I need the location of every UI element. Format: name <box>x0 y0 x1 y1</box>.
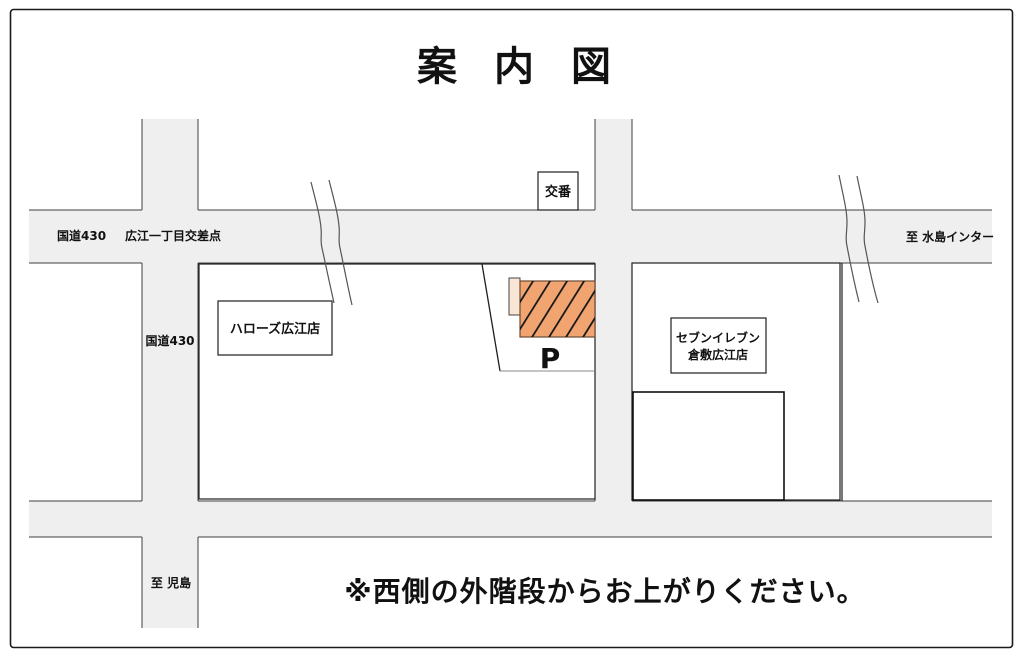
stairs-note: ※西側の外階段からお上がりください。 <box>344 575 865 608</box>
route430-top-label: 国道430 <box>57 228 106 243</box>
road-middle-vertical <box>595 119 632 501</box>
road-route430-vertical <box>142 119 198 628</box>
route430-left-label: 国道430 <box>145 333 194 348</box>
page-title: 案内図 <box>417 44 648 90</box>
hallows-label: ハローズ広江店 <box>230 321 320 337</box>
guide-map-drawing: 案内図 国道430 広江一丁目交差点 至 水島インター 国道430 至 児島 交… <box>0 0 1024 657</box>
parking-label: P <box>540 342 561 375</box>
building-outline <box>633 392 784 500</box>
to-mizushima-label: 至 水島インター <box>906 229 994 244</box>
seven-eleven-box <box>671 318 766 373</box>
to-kojima-label: 至 児島 <box>151 575 191 590</box>
seven-eleven-label-line1: セブンイレブン <box>676 330 760 345</box>
seven-eleven-label-line2: 倉敷広江店 <box>687 347 748 362</box>
koban-label: 交番 <box>545 184 572 200</box>
guide-map: 案内図 国道430 広江一丁目交差点 至 水島インター 国道430 至 児島 交… <box>0 0 1024 657</box>
building-annex <box>509 278 520 315</box>
intersection-label: 広江一丁目交差点 <box>125 228 221 243</box>
